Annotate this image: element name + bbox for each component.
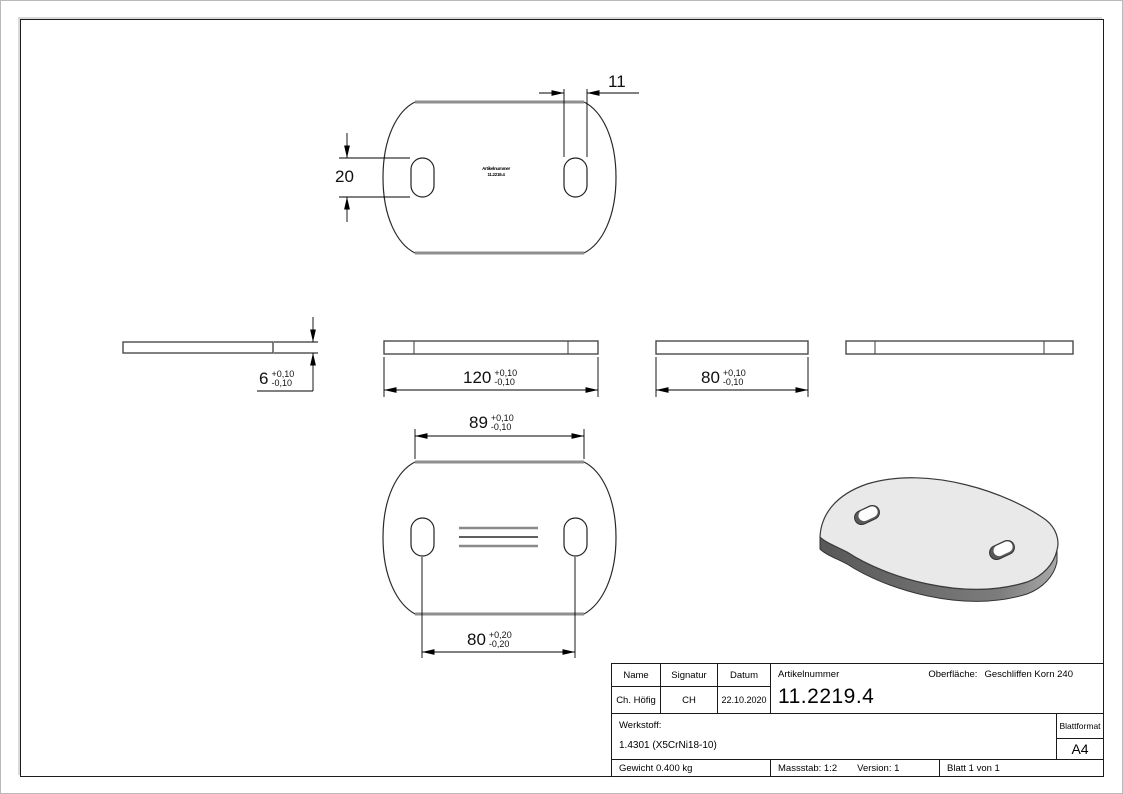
part-marking: Artikelnummer 11.2219.4 <box>473 166 519 178</box>
dim-length: 120 +0,10-0,10 <box>463 368 517 388</box>
werkstoff-value: 1.4301 (X5CrNi18-10) <box>619 740 717 751</box>
signatur-header: Signatur <box>660 663 718 687</box>
oberflaeche: Oberfläche: Geschliffen Korn 240 <box>928 669 1073 680</box>
artikelnummer-value: 11.2219.4 <box>778 685 874 709</box>
dim-slot-distance: 80 +0,20-0,20 <box>467 630 512 650</box>
artikelnummer-label: Artikelnummer <box>778 669 839 680</box>
name-header: Name <box>611 663 661 687</box>
title-block: Name Signatur Datum Ch. Höfig CH 22.10.2… <box>611 663 1104 777</box>
werkstoff-cell: Werkstoff: 1.4301 (X5CrNi18-10) <box>611 713 1057 760</box>
dim-slot-width: 11 <box>608 72 626 92</box>
blattformat-value: A4 <box>1056 738 1104 760</box>
blattformat-label: Blattformat <box>1056 713 1104 739</box>
blatt-cell: Blatt 1 von 1 <box>939 759 1104 777</box>
werkstoff-label: Werkstoff: <box>619 720 661 731</box>
gewicht-cell: Gewicht 0.400 kg <box>611 759 771 777</box>
signatur-value: CH <box>660 686 718 714</box>
artikelnummer-cell: Artikelnummer 11.2219.4 Oberfläche: Gesc… <box>770 663 1104 714</box>
massstab-cell: Massstab: 1:2Version: 1 <box>770 759 940 777</box>
name-value: Ch. Höfig <box>611 686 661 714</box>
dim-width: 80 +0,10-0,10 <box>701 368 746 388</box>
drawing-sheet: 20 11 6 +0,10-0,10 120 +0,10-0,10 80 +0,… <box>0 0 1123 794</box>
dim-slot-height: 20 <box>335 167 354 187</box>
dim-thickness: 6 +0,10-0,10 <box>259 369 294 389</box>
dim-flat-width: 89 +0,10-0,10 <box>469 413 514 433</box>
datum-value: 22.10.2020 <box>717 686 771 714</box>
datum-header: Datum <box>717 663 771 687</box>
